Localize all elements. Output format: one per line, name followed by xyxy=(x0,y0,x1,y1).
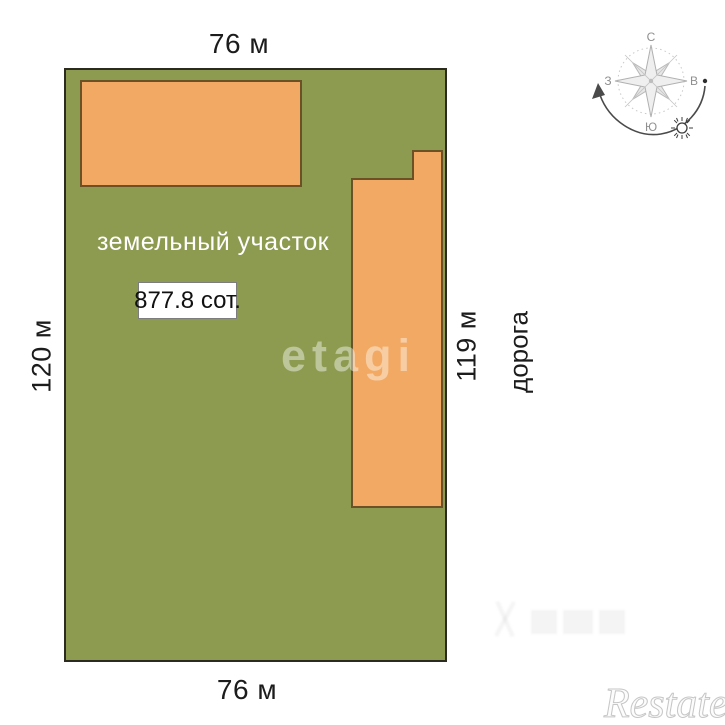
compass-north-label: С xyxy=(647,30,656,44)
compass-center xyxy=(649,79,653,83)
compass-rose: С В Ю З xyxy=(583,13,723,153)
compass-west-label: З xyxy=(604,74,611,88)
watermark-etagi: etagi xyxy=(281,330,416,382)
dim-left-label: 120 м xyxy=(27,319,58,393)
watermark-shape xyxy=(599,610,625,634)
watermark-restate: Restate xyxy=(604,680,725,725)
road-label: дорога xyxy=(504,311,535,393)
plot-title: земельный участок xyxy=(97,228,329,257)
dim-bottom-label: 76 м xyxy=(217,674,277,706)
watermark-shape xyxy=(531,610,557,634)
compass-south-label: Ю xyxy=(645,120,657,134)
sun-icon xyxy=(671,117,693,139)
watermark-shape xyxy=(563,610,593,634)
dim-right-label: 119 м xyxy=(452,310,483,382)
sun-path-arrowhead xyxy=(592,83,605,99)
area-badge: 877.8 сот. xyxy=(138,282,237,319)
land-plot-plan: 76 м 76 м 120 м 119 м дорога земельный у… xyxy=(0,0,725,725)
sun-path-start-dot xyxy=(703,79,707,83)
dim-top-label: 76 м xyxy=(209,28,269,60)
illegible-watermark xyxy=(493,596,643,644)
compass-east-label: В xyxy=(690,74,698,88)
area-value: 877.8 сот. xyxy=(134,287,241,315)
